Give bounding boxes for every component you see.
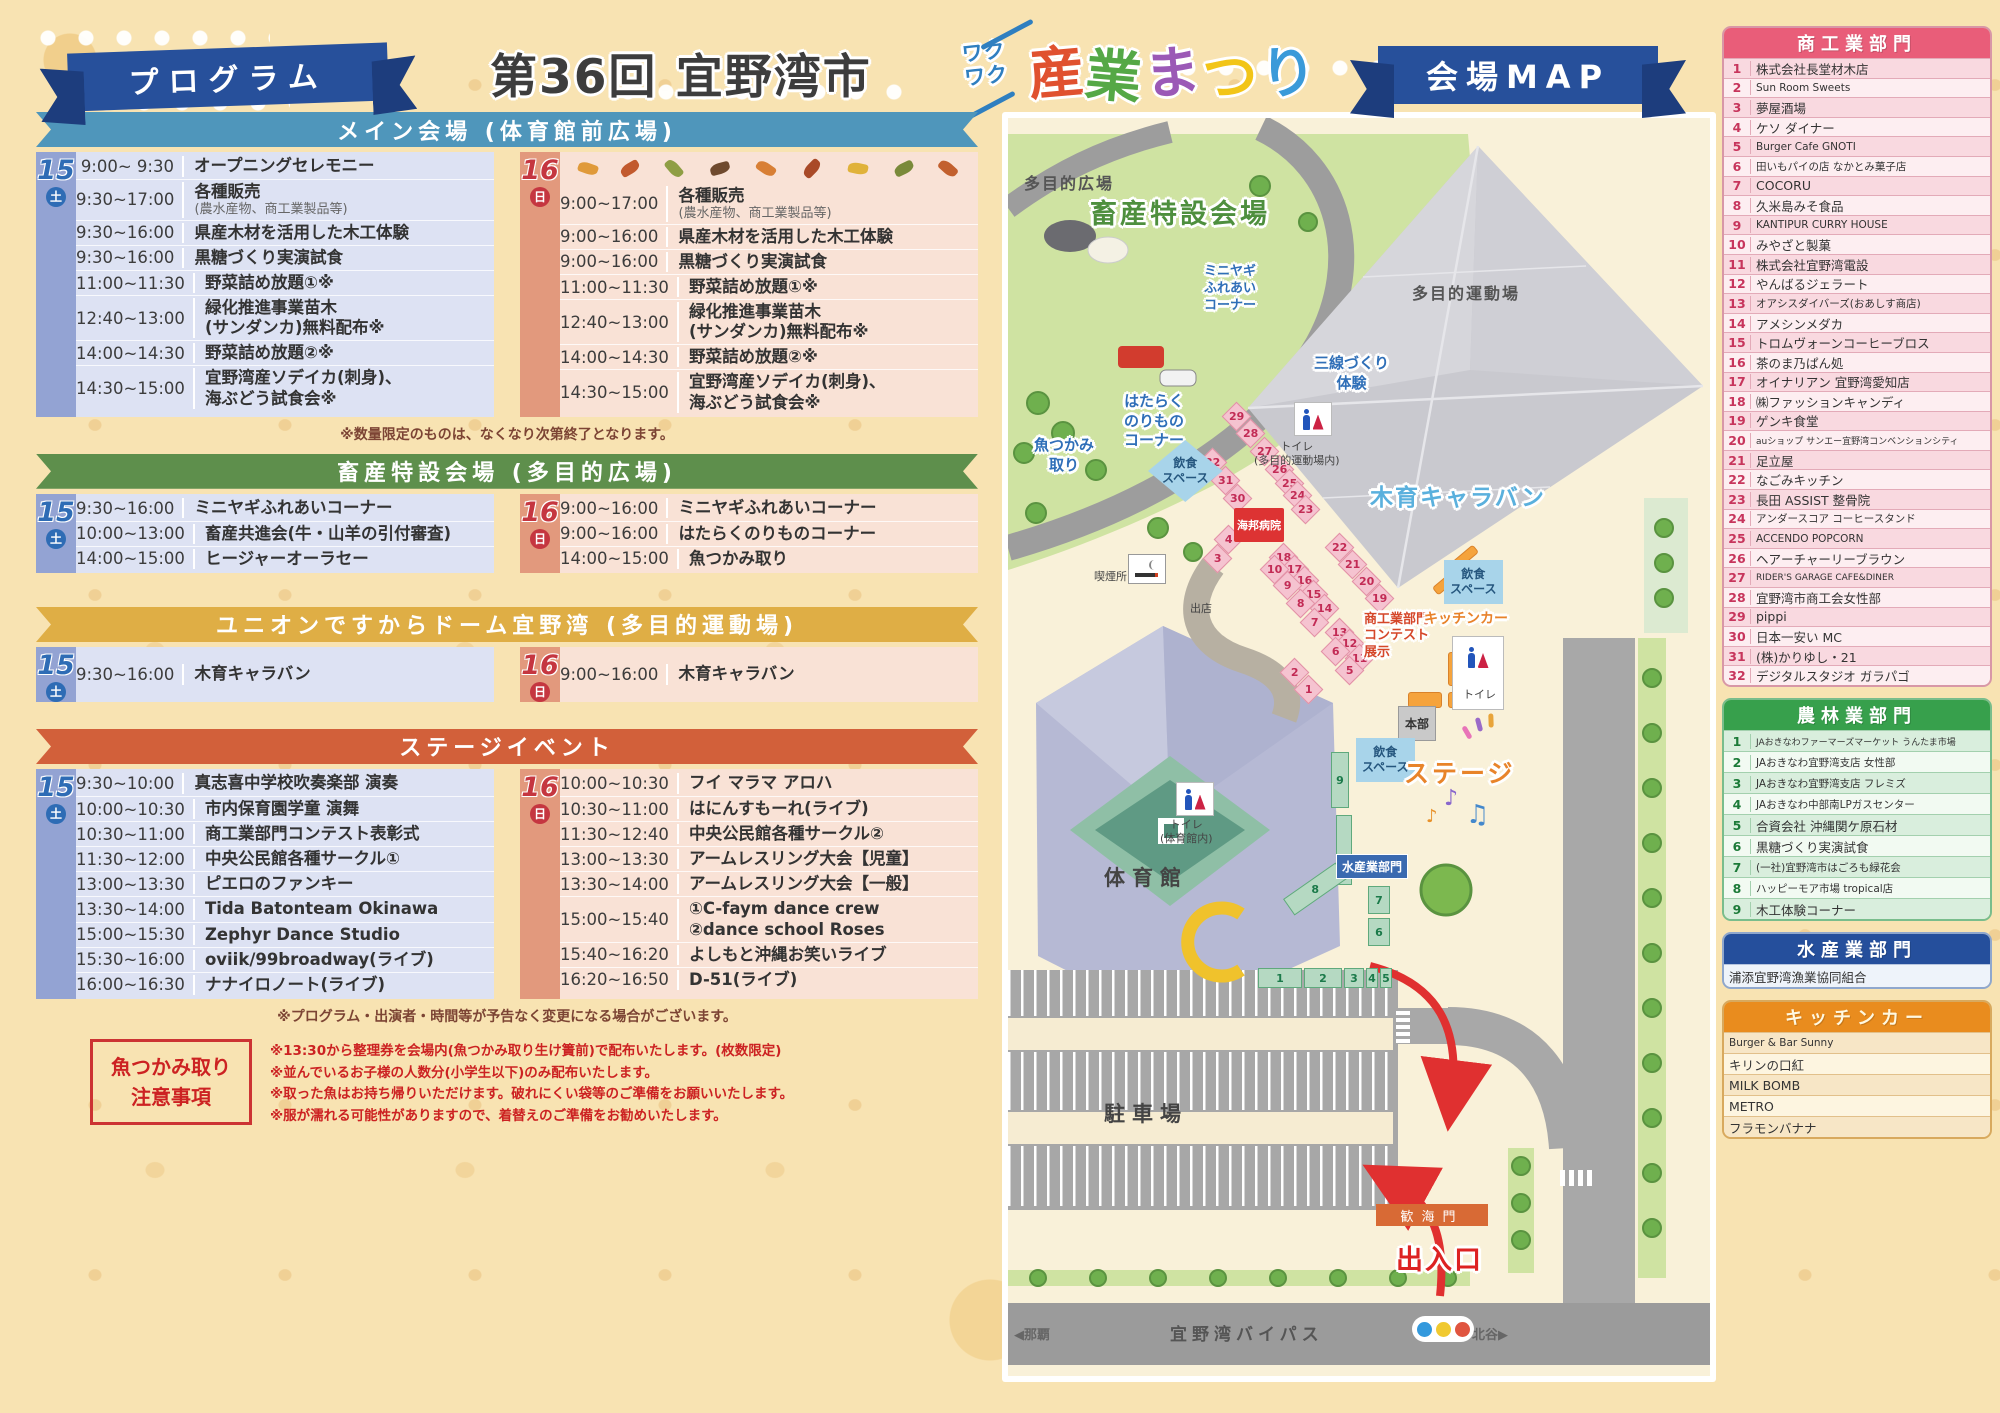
leaf-icon [709, 161, 731, 177]
booth-number: 5 [1382, 972, 1390, 985]
map-label: トイレ [1463, 688, 1496, 702]
vendor-row: 14アメシンメダカ [1724, 313, 1990, 333]
map-label: 商工業部門 コンテスト 展示 [1364, 612, 1429, 661]
event-time: 9:00~17:00 [560, 194, 666, 213]
vendor-number: 28 [1724, 590, 1751, 605]
vendor-row: 25ACCENDO POPCORN [1724, 528, 1990, 548]
event-time: 12:40~13:00 [560, 313, 677, 332]
vendor-number: 12 [1724, 276, 1751, 291]
schedule-row: 13:30~14:00アームレスリング大会【一般】 [560, 871, 978, 896]
day-number: 15 [37, 499, 75, 526]
event-name: アームレスリング大会【一般】 [689, 874, 974, 894]
vendor-row: 23長田 ASSIST 整骨院 [1724, 489, 1990, 509]
day-column: 16日9:00~16:00ミニヤギふれあいコーナー9:00~16:00はたらくの… [520, 494, 978, 573]
vendor-name: MILK BOMB [1724, 1078, 1990, 1093]
toilet-icon [1176, 782, 1214, 816]
vendor-number: 4 [1724, 797, 1751, 812]
schedule-row: 14:30~15:00宜野湾産ソデイカ(刺身)、 海ぶどう試食会※ [560, 369, 978, 414]
vendor-number: 3 [1724, 776, 1751, 791]
event-cell: 中央公民館各種サークル② [677, 824, 978, 844]
day-column: 16日9:00~17:00各種販売(農水産物、商工業製品等)9:00~16:00… [520, 152, 978, 417]
event-name: 野菜詰め放題①※ [689, 277, 974, 297]
event-cell: 野菜詰め放題①※ [677, 277, 978, 297]
booth-number: 1 [1304, 683, 1312, 696]
event-time: 12:40~13:00 [76, 309, 193, 328]
vendor-row: 3JAおきなわ宜野湾支店 フレミズ [1724, 772, 1990, 793]
schedule-row: 9:00~16:00県産木材を活用した木工体験 [560, 224, 978, 249]
schedule-row: 10:30~11:00はにんすもーれ(ライブ) [560, 796, 978, 821]
schedule-row: 14:00~14:30野菜詰め放題②※ [76, 340, 494, 365]
day-of-week-badge: 日 [530, 529, 550, 549]
event-name: 各種販売 [194, 182, 490, 202]
booth-marker-green: 2 [1304, 968, 1342, 988]
vendor-name: デジタルスタジオ ガラパゴ [1751, 666, 1990, 685]
vendor-number: 5 [1724, 818, 1751, 833]
vendor-row: 20auショップ サンエー宜野湾コンベンションシティ [1724, 430, 1990, 450]
schedule-row: 16:20~16:50D-51(ライブ) [560, 967, 978, 992]
event-time: 9:30~16:00 [76, 665, 182, 684]
event-time: 9:00~16:00 [560, 665, 666, 684]
vendor-number: 10 [1724, 237, 1751, 252]
booth-number: 29 [1228, 410, 1243, 423]
schedule-row: 14:00~15:00魚つかみ取り [560, 546, 978, 571]
event-time: 13:30~14:00 [76, 900, 193, 919]
fish-note-line: ※並んでいるお子様の人数分(小学生以下)のみ配布いたします。 [270, 1063, 793, 1085]
event-name: はたらくのりものコーナー [678, 524, 974, 544]
vendor-row: 28宜野湾市商工会女性部 [1724, 587, 1990, 607]
vendor-name: ゲンキ食堂 [1751, 411, 1990, 430]
schedule-row: 15:00~15:40①C-faym dance crew ②dance sch… [560, 896, 978, 941]
vendor-group-title: 商工業部門 [1724, 28, 1990, 58]
day-chip: 16日 [520, 494, 560, 573]
vendor-number: 14 [1724, 316, 1751, 331]
vendor-number: 30 [1724, 629, 1751, 644]
vendor-name: 宜野湾市商工会女性部 [1751, 588, 1990, 607]
vendor-name: KANTIPUR CURRY HOUSE [1751, 219, 1990, 231]
vendor-name: 足立屋 [1751, 451, 1990, 470]
event-name: 県産木材を活用した木工体験 [678, 227, 974, 247]
woman-glyph [1313, 415, 1324, 430]
event-cell: 宜野湾産ソデイカ(刺身)、 海ぶどう試食会※ [193, 368, 494, 408]
music-note-icon: ♪ [1444, 786, 1458, 811]
event-name: ①C-faym dance crew ②dance school Roses [689, 899, 974, 939]
section-columns: 15土9:30~16:00ミニヤギふれあいコーナー10:00~13:00畜産共進… [36, 494, 978, 573]
event-name: Zephyr Dance Studio [205, 925, 490, 945]
booth-number: 7 [1375, 894, 1383, 907]
event-name: ミニヤギふれあいコーナー [678, 498, 974, 518]
vendor-number: 6 [1724, 159, 1751, 174]
event-subtext: (農水産物、商工業製品等) [678, 206, 974, 222]
day-column: 15土9:30~10:00真志喜中学校吹奏楽部 演奏10:00~10:30市内保… [36, 769, 494, 999]
event-cell: 木育キャラバン [182, 664, 494, 684]
event-time: 11:00~11:30 [560, 278, 677, 297]
schedule-rows: 9:00~ 9:30オープニングセレモニー9:30~17:00各種販売(農水産物… [76, 152, 494, 417]
day-number: 16 [521, 774, 559, 801]
day-number: 15 [37, 652, 75, 679]
vendor-number: 18 [1724, 394, 1751, 409]
event-cell: 商工業部門コンテスト表彰式 [193, 824, 494, 844]
section-title: 畜産特設会場 (多目的広場) [337, 455, 677, 487]
event-cell: ナナイロノート(ライブ) [193, 975, 494, 995]
schedule-rows: 9:00~16:00木育キャラバン [560, 647, 978, 702]
schedule-row: 9:00~16:00はたらくのりものコーナー [560, 521, 978, 546]
schedule-row: 13:00~13:30ピエロのファンキー [76, 871, 494, 896]
leaf-icon [893, 159, 916, 177]
vendor-number: 4 [1724, 120, 1751, 135]
event-time: 11:30~12:40 [560, 825, 677, 844]
vendor-name: オアシスダイバーズ(おあしす商店) [1751, 296, 1990, 311]
event-name: 畜産共進会(牛・山羊の引付審査) [205, 524, 490, 544]
vendor-number: 17 [1724, 374, 1751, 389]
vendor-name: ケソ ダイナー [1751, 118, 1990, 137]
booth-number: 10 [1266, 563, 1281, 576]
event-cell: ヒージャーオーラセー [193, 549, 494, 569]
booth-number: 8 [1311, 883, 1319, 896]
schedule-row: 9:30~16:00木育キャラバン [76, 662, 494, 687]
event-cell: 県産木材を活用した木工体験 [666, 227, 978, 247]
vendor-name: みやざと製菓 [1751, 235, 1990, 254]
vendor-row: 1JAおきなわファーマーズマーケット うんたま市場 [1724, 730, 1990, 751]
section-title: ユニオンですからドーム宜野湾 (多目的運動場) [216, 608, 798, 640]
vendor-number: 29 [1724, 609, 1751, 624]
schedule-row: 9:00~16:00木育キャラバン [560, 662, 978, 687]
event-name: 緑化推進事業苗木 (サンダンカ)無料配布※ [205, 298, 490, 338]
event-cell: 黒糖づくり実演試食 [666, 252, 978, 272]
section-banner: メイン会場 (体育館前広場) [36, 112, 978, 147]
vendor-row: 30日本一安い MC [1724, 626, 1990, 646]
map-label: ミニヤギ ふれあい コーナー [1204, 264, 1256, 315]
vendor-name: (一社)宜野湾市はごろも緑花会 [1751, 860, 1990, 875]
title-char: 業 [1082, 30, 1147, 116]
leaf-icon [619, 159, 642, 179]
event-time: 15:00~15:30 [76, 925, 193, 944]
event-name: 木育キャラバン [678, 664, 974, 684]
booth-number: 30 [1229, 492, 1244, 505]
event-cell: Tida Batonteam Okinawa [193, 899, 494, 919]
festival-flyer: プログラム 第36回 宜野湾市 ワクワク 産業まつり 会場MAP メイン会場 (… [0, 0, 2000, 1413]
vendor-number: 2 [1724, 80, 1751, 95]
vendor-name: アメシンメダカ [1751, 314, 1990, 333]
event-time: 10:00~10:30 [76, 800, 193, 819]
vendor-row: 10みやざと製菓 [1724, 234, 1990, 254]
event-time: 14:00~14:30 [76, 344, 193, 363]
booth-number: 6 [1331, 645, 1339, 658]
fish-note-line: ※服が濡れる可能性がありますので、着替えのご準備をお勧めいたします。 [270, 1106, 793, 1128]
event-name: アームレスリング大会【児童】 [689, 849, 974, 869]
vendor-row: 12やんばるジェラート [1724, 274, 1990, 294]
day-of-week-badge: 日 [530, 682, 550, 702]
schedule-row: 9:30~16:00ミニヤギふれあいコーナー [76, 496, 494, 521]
map-label: 歓海門 [1376, 1204, 1488, 1226]
title-char: り [1257, 26, 1322, 112]
map-label: 喫煙所 [1094, 570, 1127, 584]
vendor-row: METRO [1724, 1095, 1990, 1116]
booth-number: 28 [1242, 427, 1257, 440]
vendor-row: 3夢屋酒場 [1724, 97, 1990, 117]
day-of-week-badge: 土 [46, 682, 66, 702]
booth-number: 8 [1296, 597, 1304, 610]
vendor-row: 18㈱ファッションキャンディ [1724, 391, 1990, 411]
event-cell: よしもと沖縄お笑いライブ [677, 945, 978, 965]
event-name: 木育キャラバン [194, 664, 490, 684]
schedule-row: 10:30~11:00商工業部門コンテスト表彰式 [76, 821, 494, 846]
booth-number: 20 [1358, 575, 1373, 588]
section-banner: ステージイベント [36, 729, 978, 764]
schedule-row: 9:00~16:00ミニヤギふれあいコーナー [560, 496, 978, 521]
vendor-name: 木工体験コーナー [1751, 900, 1990, 919]
vendor-row: 8ハッピーモア市場 tropical店 [1724, 877, 1990, 898]
event-name: オープニングセレモニー [194, 156, 490, 176]
event-cell: 各種販売(農水産物、商工業製品等) [182, 182, 494, 218]
vendor-number: 7 [1724, 178, 1751, 193]
map-label: 駐車場 [1104, 1098, 1188, 1128]
event-time: 9:00~16:00 [560, 499, 666, 518]
day-of-week-badge: 土 [46, 187, 66, 207]
event-name: 各種販売 [678, 186, 974, 206]
vendor-number: 15 [1724, 335, 1751, 350]
title-char: つ [1198, 30, 1263, 116]
event-time: 9:30~16:00 [76, 499, 182, 518]
vendor-number: 9 [1724, 218, 1751, 233]
day-of-week-badge: 日 [530, 187, 550, 207]
event-time: 15:30~16:00 [76, 950, 193, 969]
vendor-name: ヘアーチャーリーブラウン [1751, 549, 1990, 568]
schedule-row: 10:00~10:30フイ マラマ アロハ [560, 771, 978, 796]
vendor-number: 31 [1724, 649, 1751, 664]
music-note-icon: ♫ [1466, 800, 1489, 830]
map-label: 木育キャラバン [1370, 478, 1546, 512]
schedule-rows: 9:30~16:00木育キャラバン [76, 647, 494, 702]
map-label: はたらく のりもの コーナー [1124, 392, 1184, 451]
vendor-group-title: キッチンカー [1724, 1002, 1990, 1032]
vendor-number: 20 [1724, 433, 1751, 448]
fish-notes-lines: ※13:30から整理券を会場内(魚つかみ取り生け簀前)で配布いたします。(枚数限… [270, 1039, 793, 1127]
vendor-row: 26ヘアーチャーリーブラウン [1724, 548, 1990, 568]
schedule-rows: 9:30~16:00ミニヤギふれあいコーナー10:00~13:00畜産共進会(牛… [76, 494, 494, 573]
schedule-row: 9:00~ 9:30オープニングセレモニー [76, 154, 494, 179]
section-banner: ユニオンですからドーム宜野湾 (多目的運動場) [36, 607, 978, 642]
map-label: 魚つかみ 取り [1034, 436, 1094, 475]
toilet-icon [1294, 402, 1332, 436]
booth-number: 3 [1213, 552, 1221, 565]
vendor-group-norin: 農林業部門1JAおきなわファーマーズマーケット うんたま市場2JAおきなわ宜野湾… [1722, 698, 1992, 921]
event-time: 16:00~16:30 [76, 975, 193, 994]
vendor-number: 3 [1724, 100, 1751, 115]
event-cell: oviik/99broadway(ライブ) [193, 950, 494, 970]
booth-number: 2 [1319, 972, 1327, 985]
booth-number: 7 [1310, 616, 1318, 629]
venue-map: ♪ ♪ ♫ 多目的広場畜産特設会場ミニヤギ ふれあい コーナー多目的運動場三線づ… [1002, 112, 1716, 1382]
vendor-number: 13 [1724, 296, 1751, 311]
section-banner: 畜産特設会場 (多目的広場) [36, 454, 978, 489]
vendor-name: アンダースコア コーヒースタンド [1751, 511, 1990, 526]
schedule-row: 9:30~10:00真志喜中学校吹奏楽部 演奏 [76, 771, 494, 796]
vendor-row: 1株式会社長堂材木店 [1724, 58, 1990, 78]
event-name: D-51(ライブ) [689, 970, 974, 990]
event-cell: D-51(ライブ) [677, 970, 978, 990]
schedule-row: 11:30~12:40中央公民館各種サークル② [560, 821, 978, 846]
vendor-row: 31(株)かりゆし・21 [1724, 646, 1990, 666]
map-label: 多目的運動場 [1412, 280, 1520, 304]
vendor-name: 日本一安い MC [1751, 627, 1990, 646]
map-label: 体育館 [1104, 862, 1188, 892]
booth-marker-green: 1 [1258, 968, 1302, 988]
schedule-row: 9:00~17:00各種販売(農水産物、商工業製品等) [560, 184, 978, 224]
map-label: ステージ [1404, 754, 1516, 790]
event-name: Tida Batonteam Okinawa [205, 899, 490, 919]
vendor-name: METRO [1724, 1099, 1990, 1114]
day-chip: 15土 [36, 647, 76, 702]
event-time: 14:30~15:00 [560, 383, 677, 402]
schedule-row: 14:30~15:00宜野湾産ソデイカ(刺身)、 海ぶどう試食会※ [76, 365, 494, 410]
vendor-number: 16 [1724, 355, 1751, 370]
event-name: 市内保育園学童 演舞 [205, 799, 490, 819]
event-name: ナナイロノート(ライブ) [205, 975, 490, 995]
vendor-name: 株式会社長堂材木店 [1751, 59, 1990, 78]
map-label: 海邦病院 [1234, 508, 1284, 542]
event-cell: はにんすもーれ(ライブ) [677, 799, 978, 819]
day-column: 15土9:00~ 9:30オープニングセレモニー9:30~17:00各種販売(農… [36, 152, 494, 417]
event-cell: 緑化推進事業苗木 (サンダンカ)無料配布※ [677, 302, 978, 342]
event-cell: 黒糖づくり実演試食 [182, 248, 494, 268]
event-time: 10:30~11:00 [76, 825, 193, 844]
event-cell: 宜野湾産ソデイカ(刺身)、 海ぶどう試食会※ [677, 372, 978, 412]
event-time: 9:30~17:00 [76, 190, 182, 209]
vendor-name: JAおきなわ宜野湾支店 女性部 [1751, 755, 1990, 770]
schedule-row: 13:00~13:30アームレスリング大会【児童】 [560, 846, 978, 871]
event-cell: 緑化推進事業苗木 (サンダンカ)無料配布※ [193, 298, 494, 338]
vendor-row: 5Burger Cafe GNOTI [1724, 136, 1990, 156]
day-chip: 16日 [520, 647, 560, 702]
day-number: 15 [37, 774, 75, 801]
vendor-number: 9 [1724, 902, 1751, 917]
vendor-row: キリンの口紅 [1724, 1053, 1990, 1074]
vendor-row: 32デジタルスタジオ ガラパゴ [1724, 665, 1990, 685]
program-section-stage: ステージイベント15土9:30~10:00真志喜中学校吹奏楽部 演奏10:00~… [36, 729, 978, 999]
event-time: 10:30~11:00 [560, 800, 677, 819]
smoking-area-icon [1128, 554, 1166, 584]
event-name: 宜野湾産ソデイカ(刺身)、 海ぶどう試食会※ [689, 372, 974, 412]
vendor-name: フラモンバナナ [1724, 1118, 1990, 1137]
schedule-rows: 9:30~10:00真志喜中学校吹奏楽部 演奏10:00~10:30市内保育園学… [76, 769, 494, 999]
event-time: 13:00~13:30 [76, 875, 193, 894]
section-title: ステージイベント [399, 730, 615, 762]
schedule-row: 11:00~11:30野菜詰め放題①※ [560, 274, 978, 299]
event-cell: 魚つかみ取り [677, 549, 978, 569]
vendor-number: 5 [1724, 139, 1751, 154]
event-cell: ①C-faym dance crew ②dance school Roses [677, 899, 978, 939]
vendor-row: 27RIDER'S GARAGE CAFE&DINER [1724, 567, 1990, 587]
vendor-name: ACCENDO POPCORN [1751, 533, 1990, 545]
fish-notes-title: 魚つかみ取り 注意事項 [90, 1039, 252, 1125]
event-time: 16:20~16:50 [560, 970, 677, 989]
event-name: 中央公民館各種サークル① [205, 849, 490, 869]
schedule-rows: 9:00~16:00ミニヤギふれあいコーナー9:00~16:00はたらくのりもの… [560, 494, 978, 573]
vendor-sidebar: 商工業部門1株式会社長堂材木店2Sun Room Sweets3夢屋酒場4ケソ … [1722, 26, 1992, 1150]
event-name: ヒージャーオーラセー [205, 549, 490, 569]
vendor-row: 浦添宜野湾漁業協同組合 [1724, 964, 1990, 987]
day-column: 16日10:00~10:30フイ マラマ アロハ10:30~11:00はにんすも… [520, 769, 978, 999]
event-subtext: (農水産物、商工業製品等) [194, 202, 490, 218]
vendor-row: 16茶のま乃ぱん処 [1724, 352, 1990, 372]
event-time: 10:00~10:30 [560, 774, 677, 793]
vendor-row: 6黒糖づくり実演試食 [1724, 835, 1990, 856]
booth-number: 23 [1297, 503, 1312, 516]
vendor-row: 4ケソ ダイナー [1724, 117, 1990, 137]
booth-number: 31 [1217, 474, 1232, 487]
event-time: 9:00~16:00 [560, 227, 666, 246]
man-glyph [1468, 653, 1475, 668]
booth-marker-green: 4 [1366, 968, 1378, 988]
fish-note-line: ※取った魚はお持ち帰りいただけます。破れにくい袋等のご準備をお願いいたします。 [270, 1084, 793, 1106]
event-name: 魚つかみ取り [689, 549, 974, 569]
vendor-name: auショップ サンエー宜野湾コンベンションシティ [1751, 434, 1990, 447]
music-note-icon: ♪ [1426, 806, 1438, 827]
venue-map-canvas: ♪ ♪ ♫ 多目的広場畜産特設会場ミニヤギ ふれあい コーナー多目的運動場三線づ… [1008, 118, 1710, 1376]
section-columns: 15土9:30~10:00真志喜中学校吹奏楽部 演奏10:00~10:30市内保… [36, 769, 978, 999]
vendor-name: 株式会社宜野湾電設 [1751, 255, 1990, 274]
program-column: メイン会場 (体育館前広場)15土9:00~ 9:30オープニングセレモニー9:… [36, 112, 978, 1127]
event-name: 県産木材を活用した木工体験 [194, 223, 490, 243]
leaf-icon [801, 158, 823, 180]
vendor-number: 8 [1724, 198, 1751, 213]
event-cell: 県産木材を活用した木工体験 [182, 223, 494, 243]
woman-glyph [1478, 653, 1489, 668]
booth-marker-green: 5 [1380, 968, 1392, 988]
event-time: 13:00~13:30 [560, 850, 677, 869]
vendor-row: Burger & Bar Sunny [1724, 1032, 1990, 1053]
event-name: 緑化推進事業苗木 (サンダンカ)無料配布※ [689, 302, 974, 342]
day-of-week-badge: 土 [46, 529, 66, 549]
event-time: 15:00~15:40 [560, 910, 677, 929]
vendor-number: 7 [1724, 860, 1751, 875]
event-cell: はたらくのりものコーナー [666, 524, 978, 544]
event-cell: 市内保育園学童 演舞 [193, 799, 494, 819]
booth-number: 6 [1375, 926, 1383, 939]
day-of-week-badge: 土 [46, 804, 66, 824]
event-cell: ピエロのファンキー [193, 874, 494, 894]
vendor-name: pippi [1751, 609, 1990, 624]
schedule-row: 9:30~16:00黒糖づくり実演試食 [76, 245, 494, 270]
vendor-name: 長田 ASSIST 整骨院 [1751, 490, 1990, 509]
vendor-row: 9木工体験コーナー [1724, 898, 1990, 919]
vendor-group-suisan: 水産業部門浦添宜野湾漁業協同組合 [1722, 932, 1992, 989]
autumn-leaves-decoration [560, 154, 978, 184]
event-cell: Zephyr Dance Studio [193, 925, 494, 945]
event-name: 真志喜中学校吹奏楽部 演奏 [194, 773, 490, 793]
vendor-group-shoko: 商工業部門1株式会社長堂材木店2Sun Room Sweets3夢屋酒場4ケソ … [1722, 26, 1992, 687]
booth-marker-green: 3 [1344, 968, 1364, 988]
event-time: 9:30~16:00 [76, 223, 182, 242]
event-name: 宜野湾産ソデイカ(刺身)、 海ぶどう試食会※ [205, 368, 490, 408]
event-time: 9:00~16:00 [560, 524, 666, 543]
vendor-name: 夢屋酒場 [1751, 98, 1990, 117]
day-number: 16 [521, 499, 559, 526]
event-name: ミニヤギふれあいコーナー [194, 498, 490, 518]
event-name: oviik/99broadway(ライブ) [205, 950, 490, 970]
map-label: 飲食 スペース [1444, 560, 1503, 604]
leaf-icon [577, 160, 600, 177]
schedule-rows: 9:00~17:00各種販売(農水産物、商工業製品等)9:00~16:00県産木… [560, 152, 978, 417]
limited-quantity-note: ※数量限定のものは、なくなり次第終了となります。 [36, 424, 978, 444]
vendor-row: 21足立屋 [1724, 450, 1990, 470]
map-label: ◀那覇 [1014, 1324, 1050, 1343]
schedule-row: 14:00~14:30野菜詰め放題②※ [560, 344, 978, 369]
event-time: 14:00~14:30 [560, 348, 677, 367]
schedule-row: 15:40~16:20よしもと沖縄お笑いライブ [560, 942, 978, 967]
vendor-name: JAおきなわ宜野湾支店 フレミズ [1751, 776, 1990, 791]
vendor-name: 茶のま乃ぱん処 [1751, 353, 1990, 372]
